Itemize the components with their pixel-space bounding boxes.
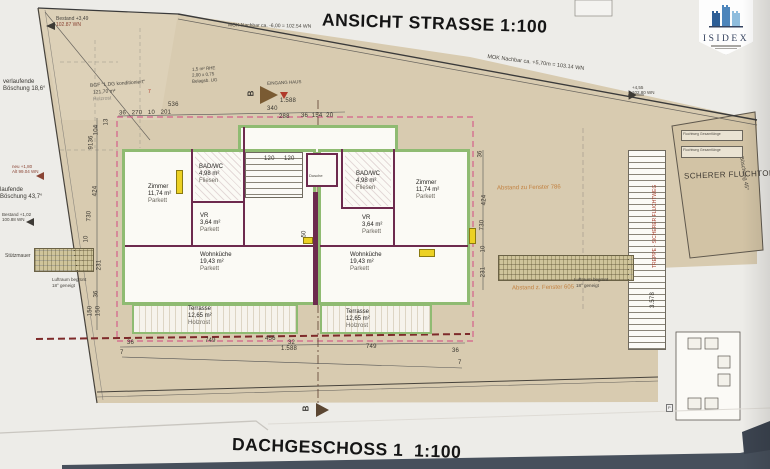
room-name: Terrasse <box>188 306 212 313</box>
luftraum-right-2: 18° geneigt <box>576 283 599 289</box>
wall <box>320 245 468 247</box>
dim-l150a: 150 <box>87 306 93 317</box>
room-floor: Fliesen <box>356 185 380 192</box>
room-area: 4,98 m² <box>199 171 223 178</box>
castle-icon <box>709 4 743 28</box>
room-floor: Parkett <box>362 229 382 236</box>
room-name: Zimmer <box>148 184 171 191</box>
marker-bestand-wn: 100.88 WN <box>2 217 25 223</box>
room-floor: Parkett <box>148 198 171 205</box>
marker-badge <box>419 249 435 257</box>
room-label-vr-right: VR 3,64 m² Parkett <box>362 215 382 236</box>
fluchtweg-note-2: Fluchtweg Gesamtlänge <box>681 146 743 158</box>
dim-l36b: 36 <box>94 290 100 297</box>
wall <box>191 149 193 247</box>
room-label-wohnkueche-left: Wohnküche 19,43 m² Parkett <box>200 252 232 273</box>
room-area: 3,64 m² <box>362 222 382 229</box>
party-wall <box>313 192 318 305</box>
dim-l424: 424 <box>92 186 98 197</box>
dim-536: 536 <box>168 102 179 108</box>
room-floor: Fliesen <box>199 178 223 185</box>
boeschung-left-1b: Böschung 18,6° <box>3 86 45 93</box>
dim-b749: 749 <box>205 338 216 344</box>
boeschung-left-1a: verlaufende <box>3 79 34 86</box>
wall <box>341 149 343 209</box>
dim-r231: 231 <box>480 267 486 278</box>
terrace-right <box>320 304 432 334</box>
dim-b36r: 36 <box>452 348 459 354</box>
stair-escape <box>628 150 666 350</box>
dim-b749r: 749 <box>366 344 377 350</box>
dim-l10: 10 <box>84 235 90 242</box>
dim-b7r: 7 <box>458 360 462 366</box>
room-name: BAD/WC <box>356 171 380 178</box>
room-name: Wohnküche <box>200 252 232 259</box>
level-right-wn: 102.80 WN <box>632 90 655 96</box>
room-label-zimmer-right: Zimmer 11,74 m² Parkett <box>416 180 439 201</box>
dim-1588-top: 1.588 <box>280 98 296 104</box>
boeschung-left-2a: laufende <box>0 187 23 194</box>
abstand-fenster-605: Abstand z. Fenster 605 <box>512 284 574 292</box>
dim-l104: 104 <box>93 125 99 136</box>
green-roof-strip-right <box>498 255 634 281</box>
marker-badge <box>303 237 313 244</box>
dim-b456: 456 <box>265 336 276 342</box>
dim-r424: 424 <box>481 195 487 206</box>
room-floor: Parkett <box>200 227 220 234</box>
shower-box <box>306 153 338 187</box>
dim-l730: 730 <box>86 211 92 222</box>
dim-r10: 10 <box>481 245 487 252</box>
marker-badge <box>176 170 183 194</box>
wall <box>341 207 395 209</box>
dim-l91: 91 <box>89 142 95 149</box>
dim-l150b: 150 <box>95 306 101 317</box>
section-marker-b-bottom: B <box>302 406 309 412</box>
wall <box>393 149 395 247</box>
room-area: 19,43 m² <box>350 259 382 266</box>
dim-3578: 3.578 <box>650 292 656 308</box>
room-label-terrasse-right: Terrasse 12,65 m² Holzrost <box>346 309 370 330</box>
dim-top-right-chain: 36 154 20 <box>301 113 333 119</box>
room-name: VR <box>200 213 220 220</box>
room-name: Wohnküche <box>350 252 382 259</box>
bgf-label-3: Holzrost <box>93 95 112 102</box>
dim-b36: 36 <box>127 340 134 346</box>
room-floor: Holzrost <box>346 323 370 330</box>
room-label-terrasse-left: Terrasse 12,65 m² Holzrost <box>188 306 212 327</box>
logo-rule <box>711 45 741 47</box>
dim-r730: 730 <box>479 220 485 231</box>
room-name: VR <box>362 215 382 222</box>
p-marker: P <box>666 404 673 412</box>
stuetzmauer-label: Stützmauer <box>5 253 31 259</box>
bgf-red-7: 7 <box>148 89 151 95</box>
scanned-floor-plan: Zimmer 11,74 m² Parkett BAD/WC 4,98 m² F… <box>0 0 770 469</box>
room-name: Terrasse <box>346 309 370 316</box>
dim-288: 288 <box>279 114 290 120</box>
dim-stair-120: 120 120 <box>264 156 295 162</box>
room-area: 12,65 m² <box>346 316 370 323</box>
dim-340: 340 <box>267 106 278 112</box>
room-area: 4,98 m² <box>356 178 380 185</box>
dim-l231: 231 <box>96 260 102 271</box>
treppe-fluchtweg-label: TREPPE - SICHERER FLUCHTWEG <box>652 185 658 268</box>
fluchtweg-note-1: Fluchtweg Gesamtlänge <box>681 130 743 141</box>
marker-neu-wn: Alt 99.04 WN <box>12 169 39 175</box>
dim-top-chain: 36 270 10 201 <box>119 110 171 117</box>
terrace-left <box>132 304 298 334</box>
dim-50: 50 <box>302 230 308 237</box>
room-area: 11,74 m² <box>148 191 171 198</box>
green-roof-strip-left <box>34 248 94 272</box>
dusche-label: Dusche <box>309 173 323 179</box>
room-floor: Parkett <box>200 266 232 273</box>
wall <box>191 201 244 203</box>
room-area: 12,65 m² <box>188 313 212 320</box>
dim-l13: 13 <box>104 118 110 125</box>
dim-r36: 36 <box>478 150 484 157</box>
room-label-vr-left: VR 3,64 m² Parkett <box>200 213 220 234</box>
bestand-level-wn: 102.87 WN <box>56 22 81 28</box>
logo-tagline-blur <box>715 48 737 49</box>
room-floor: Parkett <box>350 266 382 273</box>
room-area: 3,64 m² <box>200 220 220 227</box>
section-marker-b-top: B <box>247 91 254 97</box>
room-name: BAD/WC <box>199 164 223 171</box>
luftraum-left-2: 18° geneigt <box>52 283 75 289</box>
room-floor: Holzrost <box>188 320 212 327</box>
room-label-bad-left: BAD/WC 4,98 m² Fliesen <box>199 164 223 185</box>
marker-badge <box>469 228 476 244</box>
abstand-fenster-786: Abstand zu Fenster 786 <box>497 184 561 192</box>
room-label-wohnkueche-right: Wohnküche 19,43 m² Parkett <box>350 252 382 273</box>
photo-edge-shadow <box>742 0 770 469</box>
room-area: 11,74 m² <box>416 187 439 194</box>
room-area: 19,43 m² <box>200 259 232 266</box>
room-name: Zimmer <box>416 180 439 187</box>
dim-b1588: 1.588 <box>281 346 297 352</box>
room-label-zimmer-left: Zimmer 11,74 m² Parkett <box>148 184 171 205</box>
room-label-bad-right: BAD/WC 4,98 m² Fliesen <box>356 171 380 192</box>
boeschung-left-2b: Böschung 43,7° <box>0 194 42 201</box>
wall <box>125 245 315 247</box>
dim-b7: 7 <box>120 350 124 356</box>
room-floor: Parkett <box>416 194 439 201</box>
